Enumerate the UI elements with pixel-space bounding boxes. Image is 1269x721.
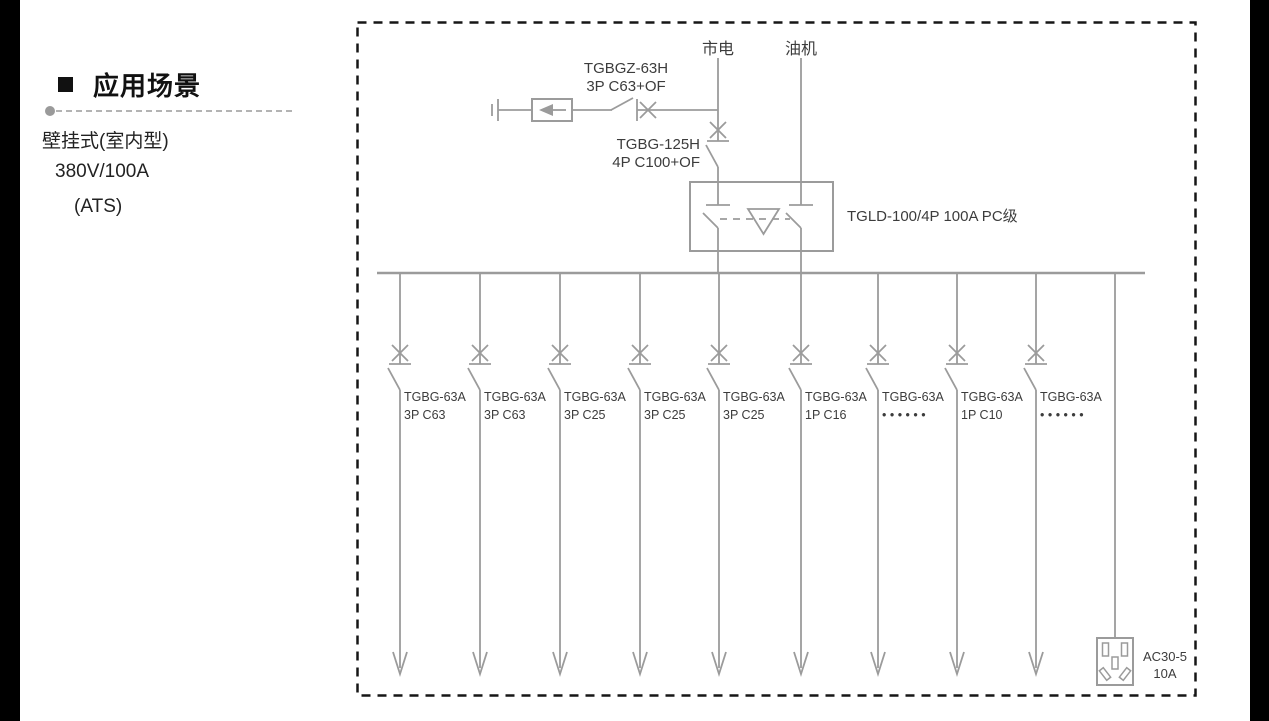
spd-branch: TGBGZ-63H 3P C63+OF [492, 60, 718, 121]
branch-spec: 3P C63 [404, 408, 446, 422]
branch-model: TGBG-63A [644, 390, 706, 404]
branch-breaker-icon [628, 345, 651, 390]
branch-breaker-icon [945, 345, 968, 390]
ats-pole-right-icon [786, 205, 813, 228]
interlock-triangle-icon [748, 209, 779, 234]
branch-model: TGBG-63A [564, 390, 626, 404]
branch-feeder-6: TGBG-63A 1P C16 [789, 273, 867, 674]
branch-breaker-icon [1024, 345, 1047, 390]
branch-spec: 3P C25 [723, 408, 765, 422]
branch-model: TGBG-63A [882, 390, 944, 404]
spd-breaker-model: TGBGZ-63H [584, 60, 668, 77]
branch-model: TGBG-63A [1040, 390, 1102, 404]
branch-breaker-icon [388, 345, 411, 390]
surge-protector-icon [532, 99, 572, 121]
branch-spec: 3P C25 [644, 408, 686, 422]
socket-model: AC30-5 [1143, 649, 1187, 664]
branch-model: TGBG-63A [723, 390, 785, 404]
socket-icon [1097, 638, 1133, 685]
branch-breaker-icon [468, 345, 491, 390]
branch-model: TGBG-63A [484, 390, 546, 404]
branch-spec: 1P C16 [805, 408, 847, 422]
earth-icon [492, 99, 498, 121]
branch-feeder-4: TGBG-63A 3P C25 [628, 273, 706, 674]
main-breaker-spec: 4P C100+OF [612, 154, 700, 171]
main-breaker-icon [706, 122, 729, 167]
branch-spec: 3P C25 [564, 408, 606, 422]
branch-feeder-9: TGBG-63A • • • • • • [1024, 273, 1102, 674]
one-line-diagram: 市电 TGBG-125H 4P C100+OF 油机 [0, 0, 1269, 721]
branch-feeder-3: TGBG-63A 3P C25 [548, 273, 626, 674]
diagram-dashed-border [358, 23, 1196, 696]
genset-label: 油机 [785, 40, 817, 58]
branch-spec: • • • • • • [1040, 408, 1084, 422]
genset-feed: 油机 [785, 40, 817, 182]
main-breaker-model: TGBG-125H [617, 136, 700, 153]
mains-label: 市电 [702, 40, 734, 58]
branch-model: TGBG-63A [961, 390, 1023, 404]
branch-feeder-5: TGBG-63A 3P C25 [707, 273, 785, 674]
page: 应用场景 壁挂式(室内型) 380V/100A (ATS) 市电 [0, 0, 1269, 721]
ats-label: TGLD-100/4P 100A PC级 [847, 208, 1018, 225]
ats-pole-left-icon [703, 205, 730, 228]
branch-breaker-icon [789, 345, 812, 390]
branch-breaker-icon [866, 345, 889, 390]
spd-breaker-spec: 3P C63+OF [586, 78, 665, 95]
branch-breaker-icon [707, 345, 730, 390]
branch-feeder-8: TGBG-63A 1P C10 [945, 273, 1023, 674]
branch-spec: • • • • • • [882, 408, 926, 422]
branch-model: TGBG-63A [404, 390, 466, 404]
branch-spec: 3P C63 [484, 408, 526, 422]
branch-breaker-icon [548, 345, 571, 390]
socket-branch: AC30-5 10A [1097, 273, 1187, 685]
branch-spec: 1P C10 [961, 408, 1003, 422]
branch-feeder-1: TGBG-63A 3P C63 [388, 273, 466, 674]
ats-switch: TGLD-100/4P 100A PC级 [690, 182, 1018, 273]
branch-feeder-2: TGBG-63A 3P C63 [468, 273, 546, 674]
branch-model: TGBG-63A [805, 390, 867, 404]
branch-feeder-7: TGBG-63A • • • • • • [866, 273, 944, 674]
socket-rating: 10A [1153, 666, 1176, 681]
